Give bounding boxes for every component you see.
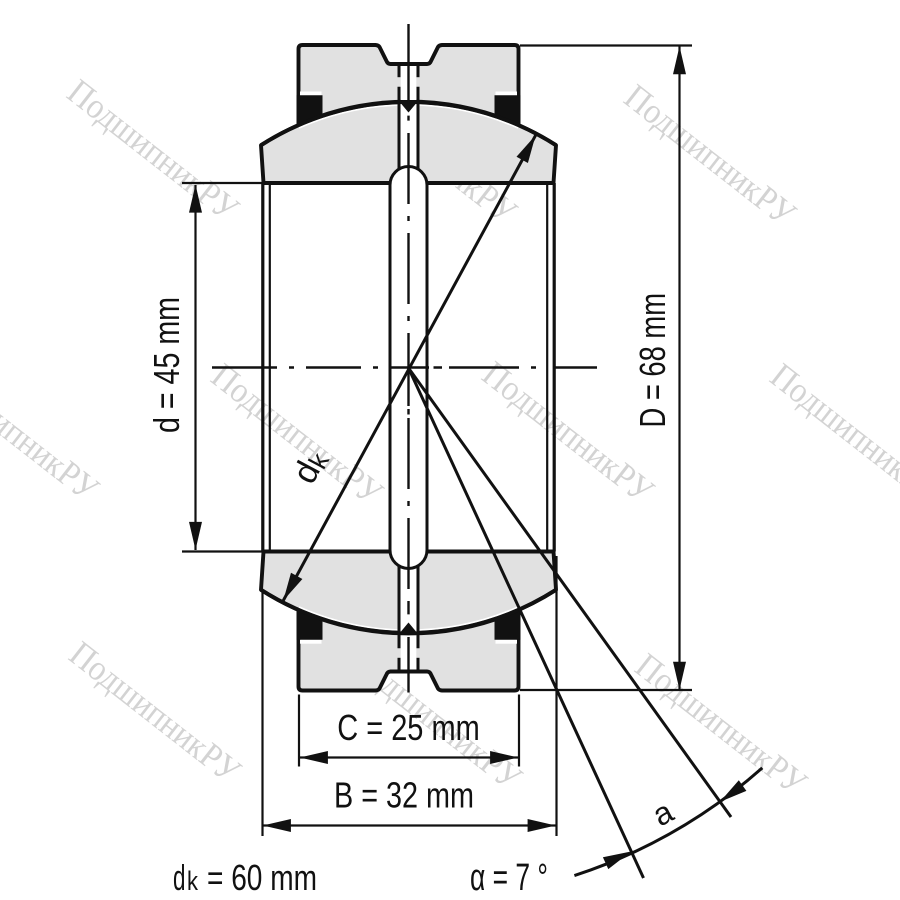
svg-text:D = 68 mm: D = 68 mm [632, 293, 673, 428]
svg-text:= 60 mm: = 60 mm [207, 857, 317, 898]
svg-text:d: d [173, 857, 186, 898]
svg-text:C = 25 mm: C = 25 mm [337, 707, 480, 748]
svg-text:k: k [187, 866, 198, 896]
svg-text:d = 45 mm: d = 45 mm [146, 297, 187, 433]
svg-text:B = 32 mm: B = 32 mm [334, 775, 474, 816]
svg-text:α = 7 °: α = 7 ° [470, 857, 548, 899]
